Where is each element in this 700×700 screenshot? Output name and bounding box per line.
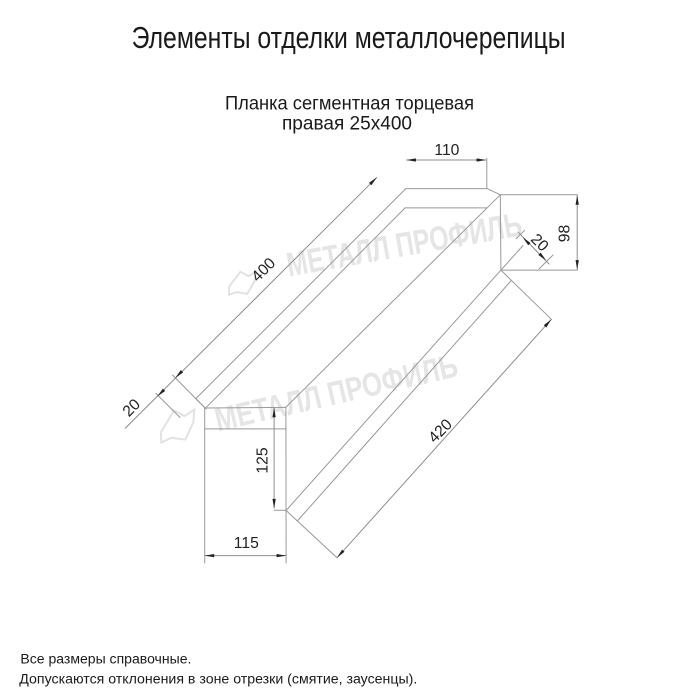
svg-text:115: 115 <box>234 535 259 552</box>
svg-text:125: 125 <box>255 447 272 473</box>
svg-text:110: 110 <box>434 142 459 159</box>
svg-text:Планка сегментная торцевая: Планка сегментная торцевая <box>225 93 474 115</box>
svg-text:Все размеры справочные.: Все размеры справочные. <box>20 652 191 667</box>
svg-text:Элементы отделки металлочерепи: Элементы отделки металлочерепицы <box>132 20 566 55</box>
svg-text:Допускаются отклонения в зоне: Допускаются отклонения в зоне отрезки (с… <box>19 671 417 686</box>
svg-text:правая 25х400: правая 25х400 <box>282 113 412 135</box>
svg-text:98: 98 <box>557 225 574 243</box>
